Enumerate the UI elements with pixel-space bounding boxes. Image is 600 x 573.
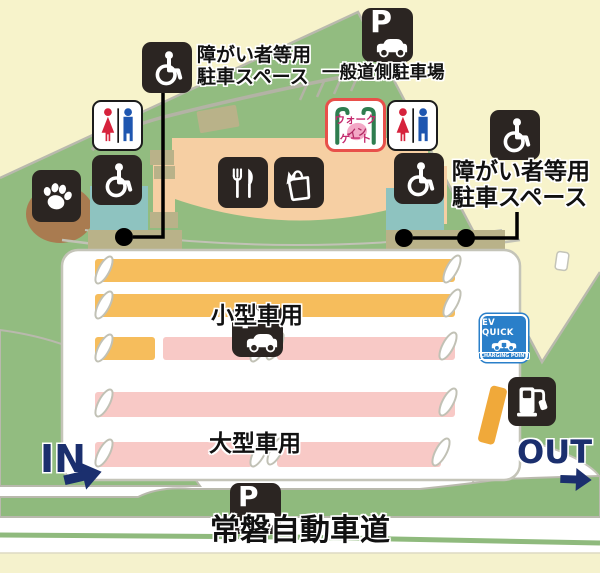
fork-knife-icon bbox=[223, 163, 263, 203]
ev-sign-subtitle: CHARGING POINT bbox=[478, 352, 530, 360]
car-icon bbox=[245, 332, 279, 353]
out-arrow-icon bbox=[556, 467, 597, 491]
paw-icon-box bbox=[32, 170, 81, 222]
paw-icon bbox=[37, 176, 77, 216]
wheelchair-icon bbox=[399, 159, 439, 199]
small-car-label: 小型車用 bbox=[211, 303, 303, 329]
car-icon bbox=[375, 37, 409, 58]
ev-charging-icon bbox=[484, 338, 524, 352]
wheelchair-icon-box-2 bbox=[92, 155, 142, 205]
disabled-parking-label-right: 障がい者等用 駐車スペース bbox=[452, 159, 590, 211]
fuel-pump-icon bbox=[512, 381, 552, 422]
wheelchair-icon bbox=[97, 160, 137, 200]
wheelchair-icon bbox=[147, 48, 187, 88]
out-label: OUT bbox=[517, 433, 592, 471]
large-car-label: 大型車用 bbox=[209, 431, 301, 457]
ev-charging-sign: EV QUICK CHARGING POINT bbox=[480, 314, 528, 362]
wheelchair-icon-box-1 bbox=[142, 42, 192, 93]
general-parking-icon-box: P bbox=[362, 8, 413, 62]
wheelchair-icon bbox=[495, 115, 535, 155]
far-shoulder bbox=[0, 553, 600, 573]
restroom-box-right bbox=[387, 100, 438, 151]
ev-sign-title: EV QUICK bbox=[482, 318, 526, 338]
walk-gate-icon-box: イン ウォーク ゲート bbox=[325, 98, 386, 152]
highway-name: 常磐自動車道 bbox=[0, 514, 600, 548]
gate-label-1: ウォーク bbox=[328, 112, 383, 127]
parking-letter: P bbox=[370, 8, 392, 38]
shopping-bag-icon bbox=[279, 163, 319, 203]
restroom-box-left bbox=[92, 100, 143, 151]
wheelchair-icon-box-4 bbox=[490, 110, 540, 160]
restroom-icon bbox=[97, 105, 139, 147]
service-area-map: 障がい者等用 駐車スペース bbox=[0, 0, 600, 573]
shop-icon-box bbox=[274, 157, 324, 208]
restroom-icon bbox=[392, 105, 434, 147]
disabled-parking-label-left: 障がい者等用 駐車スペース bbox=[197, 45, 311, 88]
gate-label-3: ゲート bbox=[328, 131, 383, 146]
walkway-left bbox=[88, 230, 182, 250]
wheelchair-icon-box-3 bbox=[394, 153, 444, 204]
sign-small bbox=[555, 251, 569, 270]
parking-letter: P bbox=[238, 483, 259, 511]
general-parking-label: 一般道側駐車場 bbox=[322, 64, 445, 84]
restaurant-icon-box bbox=[218, 157, 268, 208]
fuel-icon-box bbox=[508, 377, 556, 426]
